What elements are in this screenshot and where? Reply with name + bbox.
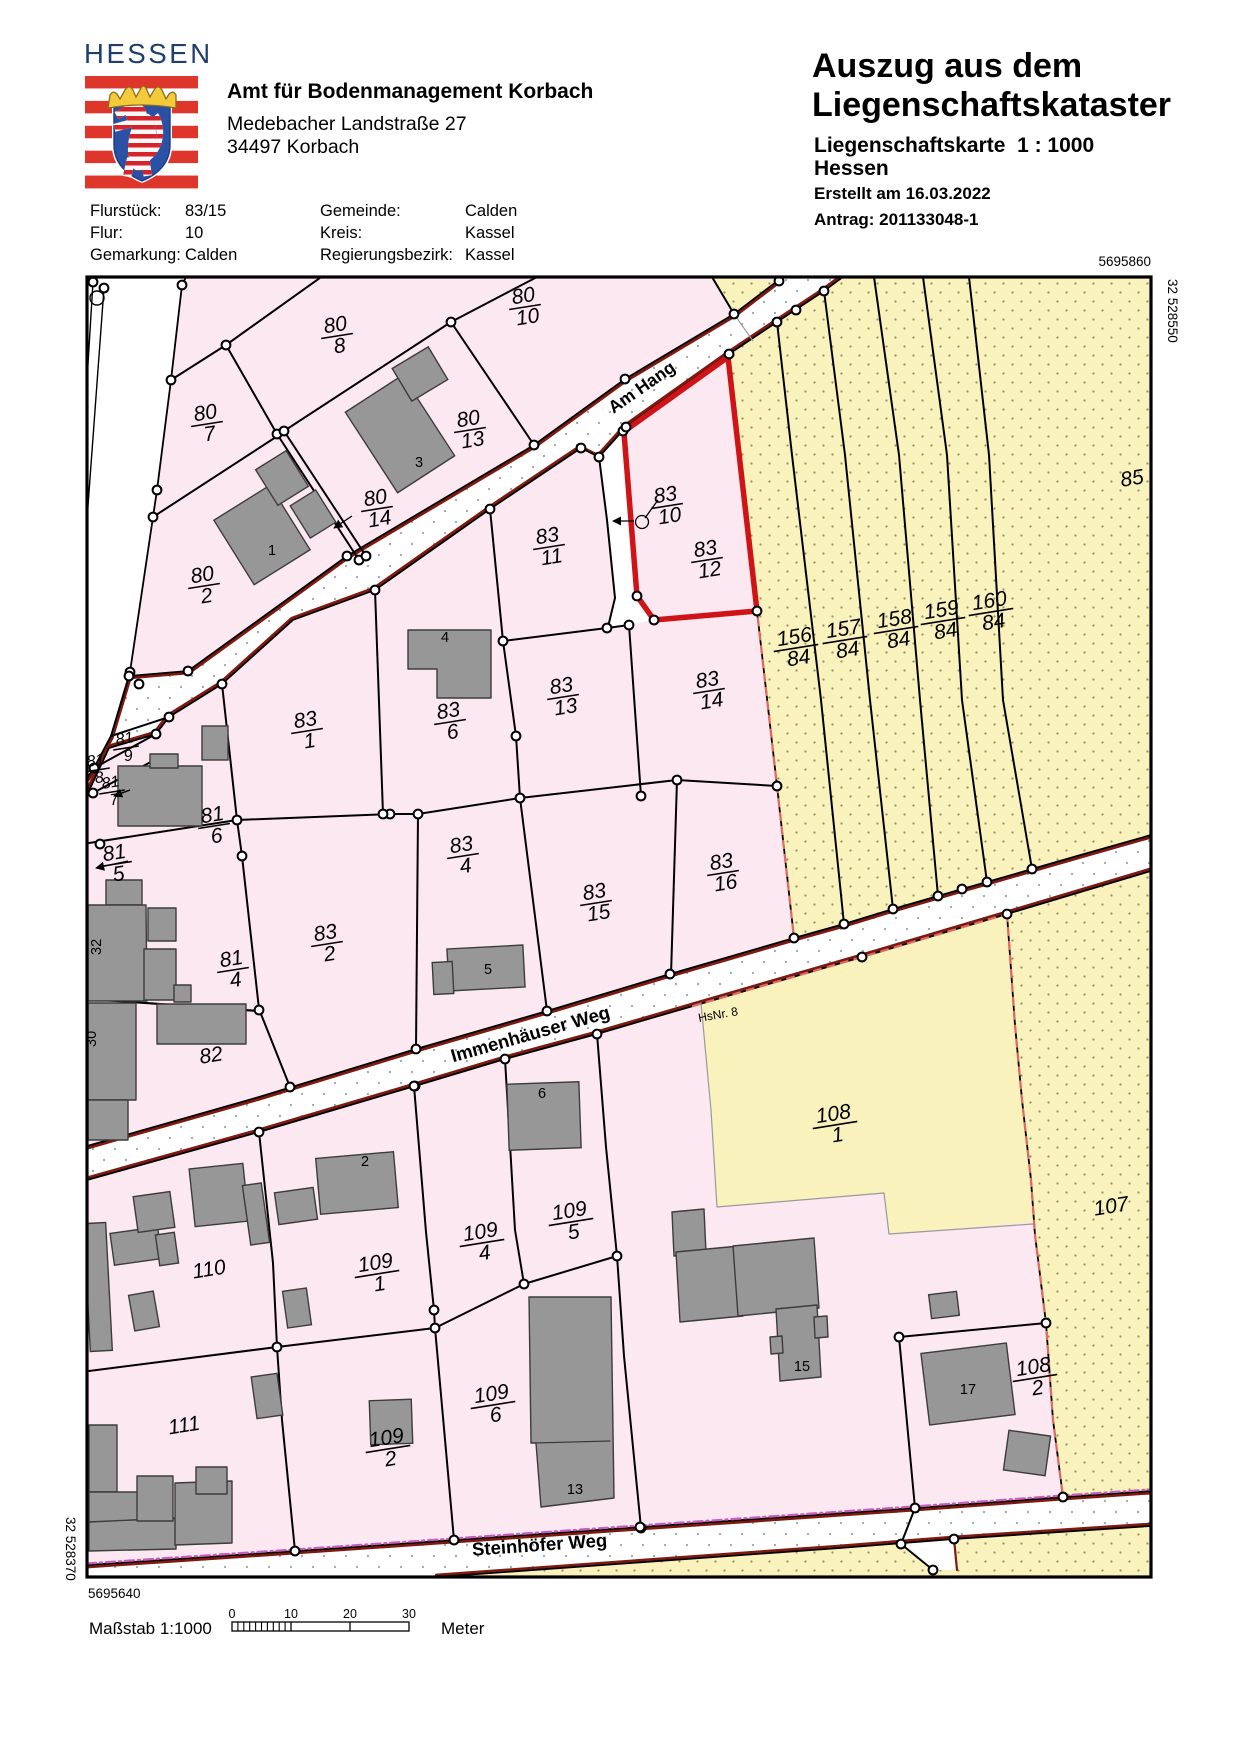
svg-text:Amt für Bodenmanagement Korbac: Amt für Bodenmanagement Korbach <box>227 80 593 103</box>
svg-text:11: 11 <box>539 544 564 570</box>
svg-text:20: 20 <box>343 1607 357 1621</box>
svg-text:Liegenschaftskarte 1 : 1000: Liegenschaftskarte 1 : 1000 <box>814 134 1094 157</box>
svg-text:Auszug aus dem: Auszug aus dem <box>812 47 1082 85</box>
svg-text:34497 Korbach: 34497 Korbach <box>227 136 359 158</box>
svg-text:Hessen: Hessen <box>814 157 889 180</box>
svg-text:81: 81 <box>114 729 134 749</box>
svg-text:0: 0 <box>229 1607 236 1621</box>
svg-text:30: 30 <box>402 1607 416 1621</box>
svg-text:32 528370: 32 528370 <box>63 1517 78 1581</box>
svg-text:84: 84 <box>834 637 861 663</box>
svg-text:32: 32 <box>89 939 105 955</box>
svg-text:Calden: Calden <box>465 202 517 220</box>
svg-text:3: 3 <box>415 455 423 471</box>
svg-text:85: 85 <box>1119 465 1146 491</box>
svg-text:84: 84 <box>885 627 912 653</box>
svg-text:2: 2 <box>361 1154 369 1170</box>
svg-text:10: 10 <box>185 224 203 242</box>
svg-text:Kreis:: Kreis: <box>320 224 362 242</box>
svg-text:15: 15 <box>794 1359 810 1375</box>
svg-text:Medebacher Landstraße 27: Medebacher Landstraße 27 <box>227 113 467 135</box>
svg-text:Gemarkung:: Gemarkung: <box>90 246 181 264</box>
svg-text:81: 81 <box>100 773 120 793</box>
svg-text:5: 5 <box>484 962 492 978</box>
svg-text:12: 12 <box>696 557 723 583</box>
svg-text:32 528550: 32 528550 <box>1165 279 1180 343</box>
svg-text:10: 10 <box>656 503 683 529</box>
svg-text:Liegenschaftskataster: Liegenschaftskataster <box>812 86 1171 124</box>
svg-text:84: 84 <box>980 609 1007 635</box>
svg-text:13: 13 <box>567 1482 583 1498</box>
svg-text:Calden: Calden <box>185 246 237 264</box>
svg-text:HESSEN: HESSEN <box>84 38 213 69</box>
svg-text:Flur:: Flur: <box>90 224 123 242</box>
svg-text:6: 6 <box>538 1086 546 1102</box>
svg-text:82: 82 <box>198 1042 225 1068</box>
svg-text:17: 17 <box>960 1382 976 1398</box>
svg-text:84: 84 <box>785 645 812 671</box>
svg-text:Kassel: Kassel <box>465 224 515 242</box>
svg-text:5695860: 5695860 <box>1098 254 1151 269</box>
svg-text:10: 10 <box>514 304 541 330</box>
svg-text:4: 4 <box>441 630 449 646</box>
svg-text:10: 10 <box>284 1607 298 1621</box>
svg-text:13: 13 <box>459 427 486 453</box>
svg-text:13: 13 <box>552 694 579 720</box>
svg-text:1: 1 <box>268 543 276 559</box>
svg-text:83/15: 83/15 <box>185 202 226 220</box>
svg-text:Gemeinde:: Gemeinde: <box>320 202 401 220</box>
svg-text:Maßstab 1:1000: Maßstab 1:1000 <box>89 1619 212 1638</box>
svg-text:14: 14 <box>698 688 725 714</box>
svg-text:14: 14 <box>366 506 393 532</box>
svg-text:Flurstück:: Flurstück: <box>90 202 162 220</box>
svg-text:5695640: 5695640 <box>88 1586 141 1601</box>
svg-text:Antrag: 201133048-1: Antrag: 201133048-1 <box>814 210 978 229</box>
svg-text:Kassel: Kassel <box>465 246 515 264</box>
svg-text:Regierungsbezirk:: Regierungsbezirk: <box>320 246 453 264</box>
svg-text:15: 15 <box>585 900 612 926</box>
svg-text:Erstellt am 16.03.2022: Erstellt am 16.03.2022 <box>814 184 991 203</box>
svg-text:84: 84 <box>932 618 959 644</box>
svg-text:16: 16 <box>712 870 739 896</box>
svg-text:Meter: Meter <box>441 1619 485 1638</box>
